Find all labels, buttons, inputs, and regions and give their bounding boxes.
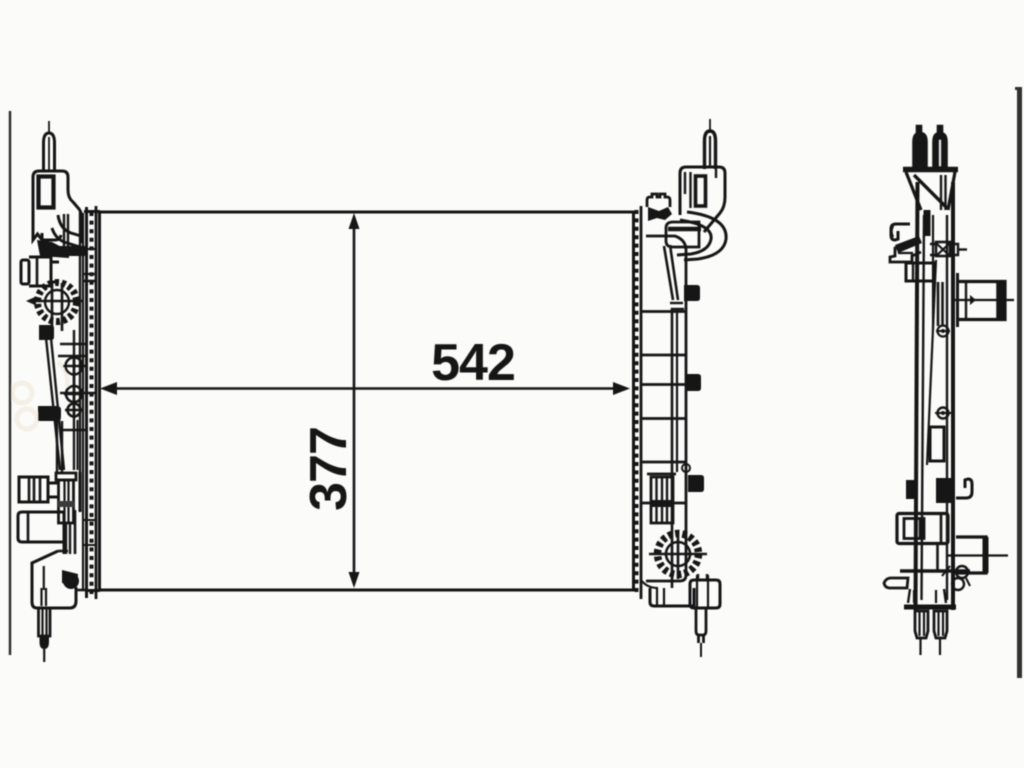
svg-text:542: 542 xyxy=(431,334,515,392)
svg-text:377: 377 xyxy=(300,427,358,511)
